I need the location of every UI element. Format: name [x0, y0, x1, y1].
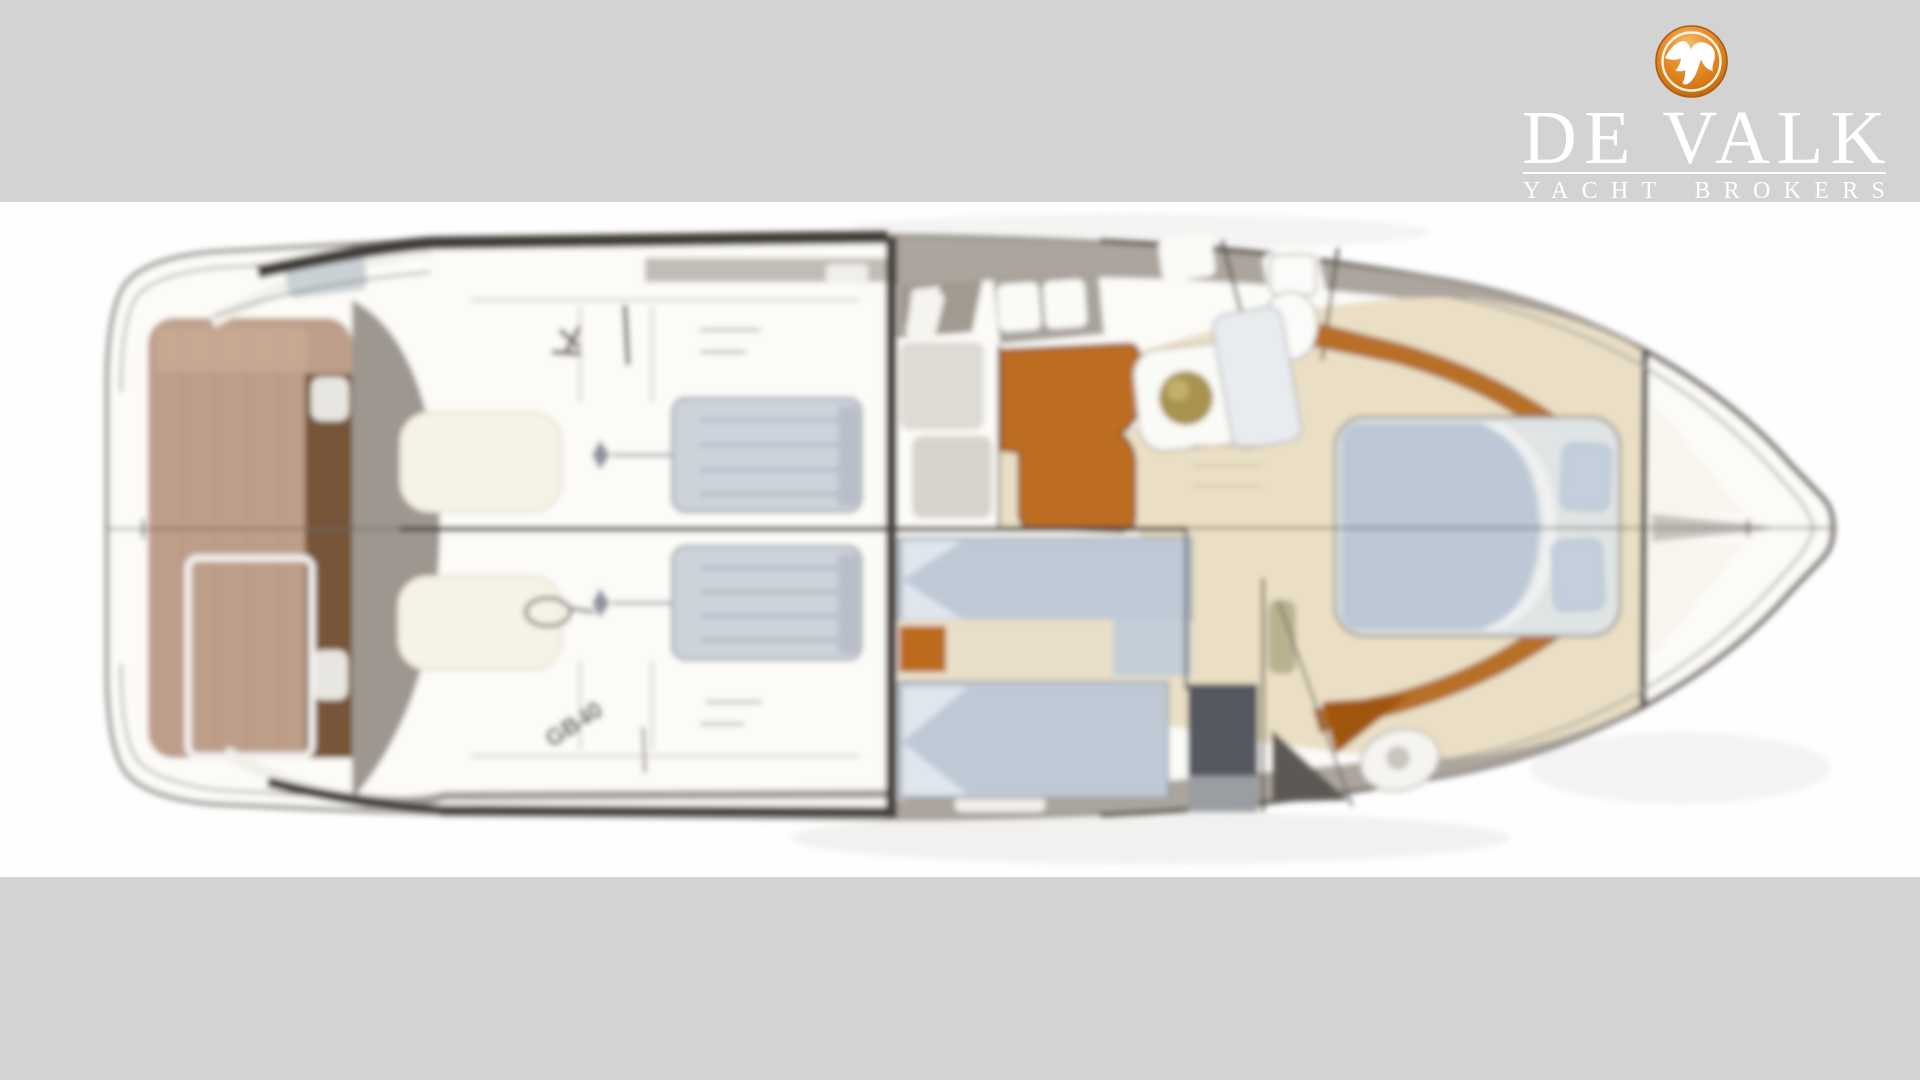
- svg-text:YACHT BROKERS: YACHT BROKERS: [1523, 178, 1898, 204]
- svg-text:DE VALK: DE VALK: [1522, 96, 1893, 180]
